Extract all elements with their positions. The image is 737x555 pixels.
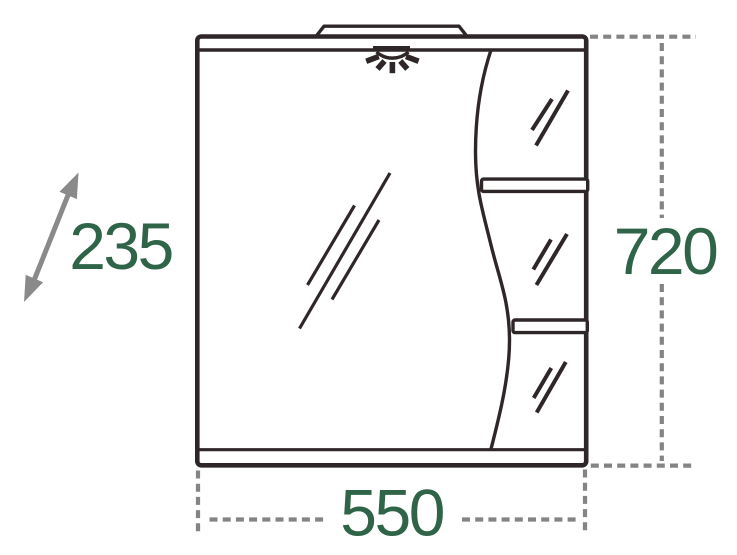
svg-text:550: 550 xyxy=(340,476,443,550)
svg-text:720: 720 xyxy=(614,214,717,288)
svg-text:235: 235 xyxy=(69,209,172,283)
